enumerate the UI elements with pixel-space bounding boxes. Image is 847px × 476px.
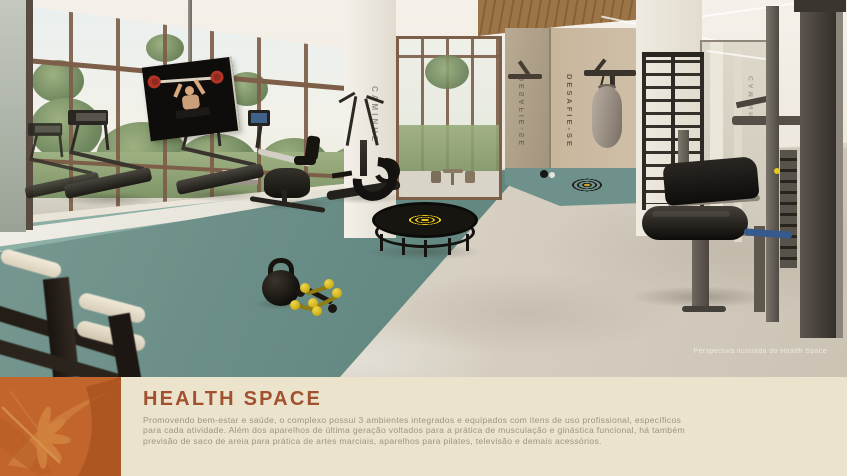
glass-doors [396, 36, 502, 200]
elliptical-arm [364, 98, 379, 145]
cable-weight-machine [766, 0, 847, 338]
machine-upright [766, 6, 779, 322]
elliptical-handle [366, 95, 384, 104]
small-ball [549, 172, 555, 178]
photo-caption: Perspectiva ilustrada do Health Space [694, 348, 827, 355]
terrace-chair [431, 171, 441, 183]
body-line: previsão de saco de areia para prática d… [143, 436, 685, 446]
trampoline-leg [448, 238, 451, 255]
treadmill-deck [64, 167, 153, 199]
recumbent-bike [248, 110, 332, 210]
treadmill-screen [76, 113, 106, 121]
machine-highlight-edge [836, 0, 843, 338]
treadmill-console [68, 110, 108, 125]
small-ball [540, 170, 548, 178]
wall-text-desafie-se: DESAFIE-SE [565, 74, 574, 149]
gym-render: CAMINHE DESAFIE-SE DESAFIE-SE [0, 0, 847, 377]
yellow-dumbbell-end [332, 288, 342, 298]
elliptical-arm [346, 96, 358, 146]
bike-screen [251, 113, 267, 123]
treadmill [64, 110, 154, 205]
machine-leg [692, 238, 709, 312]
terrace-greenery [399, 125, 499, 171]
floor-target-rings [556, 172, 618, 198]
leaf-pattern-graphic [0, 377, 121, 476]
bike-leg [282, 190, 287, 204]
trampoline-leg [402, 238, 405, 255]
terrace-floor [399, 171, 499, 197]
foreground-foam-roller-rack [0, 272, 177, 377]
body-line: para cada atividade. Além dos aparelhos … [143, 425, 685, 435]
yellow-dumbbell-end [324, 279, 334, 289]
machine-leg [754, 226, 765, 312]
yellow-dumbbell-end [312, 306, 322, 316]
wall-bars-top [642, 52, 704, 57]
brochure-page: CAMINHE DESAFIE-SE DESAFIE-SE [0, 0, 847, 476]
weight-stack [780, 150, 797, 268]
mini-trampoline [372, 196, 478, 254]
bike-shroud [264, 168, 310, 198]
treadmill-rail [69, 150, 144, 171]
orange-leaf-decoration [0, 377, 121, 476]
trampoline-mat [372, 202, 478, 238]
leg-extension-machine [634, 130, 786, 312]
trampoline-leg [380, 234, 383, 251]
treadmill-arm [104, 123, 110, 150]
treadmill-arm [58, 134, 63, 157]
black-dumbbell-end [328, 304, 337, 313]
info-panel: HEALTH SPACE Promovendo bem-estar e saúd… [0, 377, 847, 476]
machine-top-beam [794, 0, 846, 12]
machine-roller-highlight [652, 211, 730, 217]
treadmill-screen [35, 126, 61, 133]
section-body: Promovendo bem-estar e saúde, o complexo… [143, 415, 685, 446]
machine-foot [682, 306, 726, 312]
tv-bench [175, 107, 210, 119]
alcove-mirror: DESAFIE-SE [505, 28, 551, 168]
bike-seat [294, 156, 316, 165]
tv-athlete-arm [194, 79, 206, 95]
tv-athlete-arm [173, 83, 182, 97]
treadmill-console [28, 123, 62, 136]
terrace-chair [465, 171, 475, 183]
punching-bag [592, 86, 622, 148]
left-glass-wall [0, 0, 26, 232]
trampoline-leg [424, 240, 427, 257]
trampoline-leg [466, 234, 469, 251]
machine-seat [662, 156, 759, 206]
terrace-table-leg [451, 173, 454, 185]
yellow-dumbbell-end [290, 300, 300, 310]
weight-pin [774, 168, 780, 174]
bike-post [255, 124, 262, 148]
palm-tree [425, 55, 469, 89]
tv-mount-pole [188, 0, 192, 66]
yellow-dumbbell-end [300, 283, 310, 293]
wall-bracket [508, 74, 542, 79]
machine-upright [800, 0, 836, 338]
treadmill-rail [181, 146, 256, 167]
elliptical-pedal [332, 170, 353, 178]
wall-text-desafie-se-mirrored: DESAFIE-SE [519, 76, 526, 148]
tv-screen [142, 57, 240, 141]
body-line: Promovendo bem-estar e saúde, o complexo… [143, 415, 685, 425]
section-title: HEALTH SPACE [143, 388, 322, 411]
